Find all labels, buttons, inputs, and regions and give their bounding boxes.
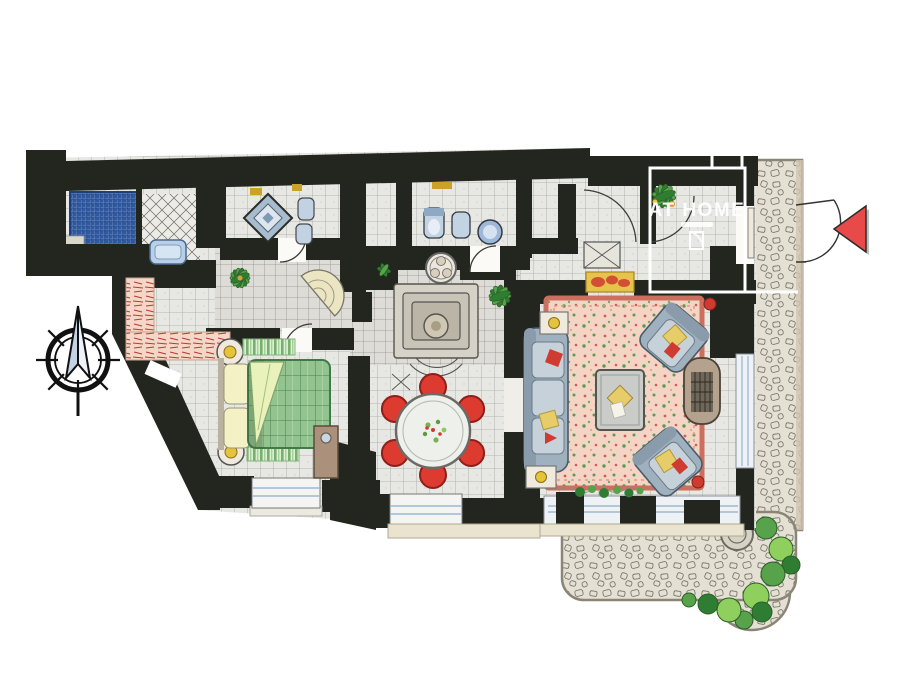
sofa [524, 328, 568, 472]
coffee-table [596, 370, 644, 430]
right-glazed-door [736, 354, 754, 468]
entrance-arrow-triangle [834, 206, 866, 252]
runner-rug [126, 332, 230, 360]
wardrobe-knob [321, 433, 331, 443]
floor-plan-image: AT HOME [0, 0, 900, 675]
compass-rose [36, 306, 120, 416]
stone-path [750, 160, 804, 530]
pillow [224, 364, 250, 404]
watermark-title: AT HOME [649, 200, 746, 221]
living-room [524, 298, 720, 500]
double-bed [218, 358, 330, 450]
bedside-rug [243, 339, 295, 355]
lamp [224, 346, 236, 358]
red-marker [692, 476, 704, 488]
sofa-cushion [539, 410, 559, 430]
wall-accent [432, 182, 452, 189]
lamp [536, 472, 547, 483]
doormat [586, 272, 634, 292]
headboard [218, 358, 224, 450]
living-windows [540, 492, 744, 536]
toilet [298, 198, 314, 220]
fireplace [684, 358, 720, 424]
wall-accent [250, 188, 262, 195]
bidet [452, 212, 470, 238]
red-marker [704, 298, 716, 310]
lamp [549, 318, 560, 329]
compass-needle [66, 306, 78, 378]
pillow [224, 408, 250, 448]
door-opening [470, 246, 500, 272]
bedroom-window [250, 478, 322, 516]
wall-accent [292, 184, 302, 191]
bidet [296, 224, 312, 244]
watermark-subline [681, 222, 713, 227]
compass-needle [78, 306, 90, 378]
